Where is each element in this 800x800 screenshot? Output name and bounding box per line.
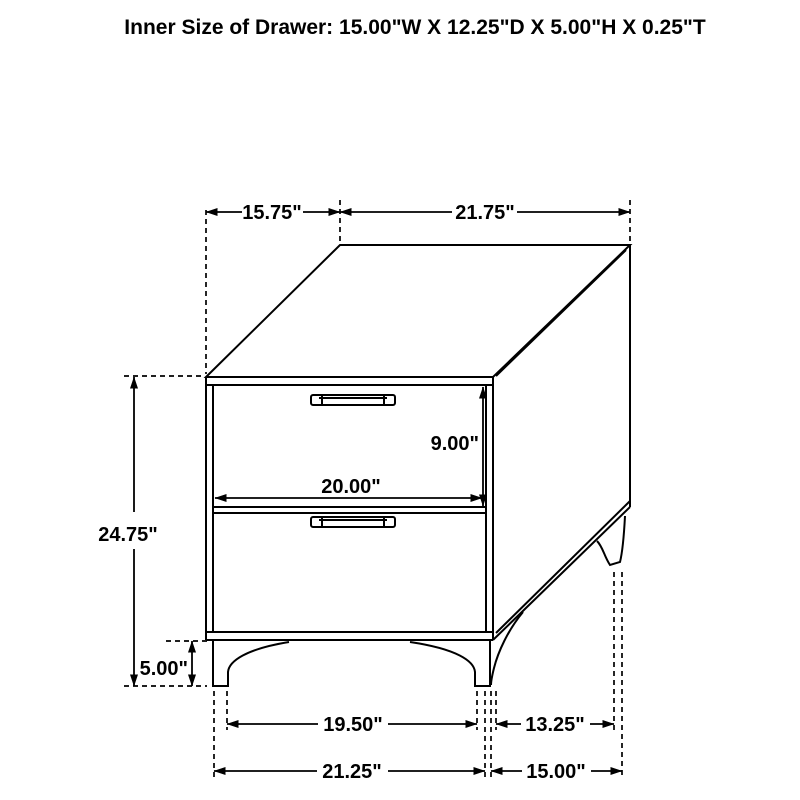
dimension-labels: 15.75" 21.75" 24.75" 5.00" 9.00" 20.00" … bbox=[98, 202, 586, 783]
nightstand-drawing bbox=[206, 245, 630, 686]
bottom-drawer-handle bbox=[311, 517, 395, 527]
dim-label-leg-height: 5.00" bbox=[140, 658, 188, 680]
top-drawer-handle bbox=[311, 395, 395, 405]
side-panel-bottom-edge-inner bbox=[496, 501, 630, 633]
dim-label-side-inner-span: 13.25" bbox=[525, 714, 585, 736]
dim-label-feet-inner-span: 19.50" bbox=[323, 714, 383, 736]
nightstand-dimension-diagram: Inner Size of Drawer: 15.00"W X 12.25"D … bbox=[0, 0, 800, 800]
front-left-leg bbox=[213, 641, 289, 686]
front-right-leg bbox=[410, 641, 490, 686]
side-panel-bottom-edge bbox=[493, 507, 630, 640]
dimension-lines bbox=[134, 212, 630, 771]
dim-label-top-width: 21.75" bbox=[455, 202, 515, 224]
dim-label-feet-outer-span: 21.25" bbox=[322, 761, 382, 783]
cabinet-top-right-edge-inner bbox=[496, 250, 626, 376]
cabinet-top-face bbox=[206, 245, 630, 377]
dim-label-drawer-height: 9.00" bbox=[431, 433, 479, 455]
technical-drawing-page: Inner Size of Drawer: 15.00"W X 12.25"D … bbox=[0, 0, 800, 800]
back-right-leg bbox=[597, 516, 625, 565]
dim-label-drawer-width: 20.00" bbox=[321, 476, 381, 498]
drawing-title: Inner Size of Drawer: 15.00"W X 12.25"D … bbox=[124, 16, 706, 39]
dim-label-overall-height: 24.75" bbox=[98, 524, 158, 546]
dim-label-side-outer-span: 15.00" bbox=[526, 761, 586, 783]
dim-label-top-depth: 15.75" bbox=[242, 202, 302, 224]
